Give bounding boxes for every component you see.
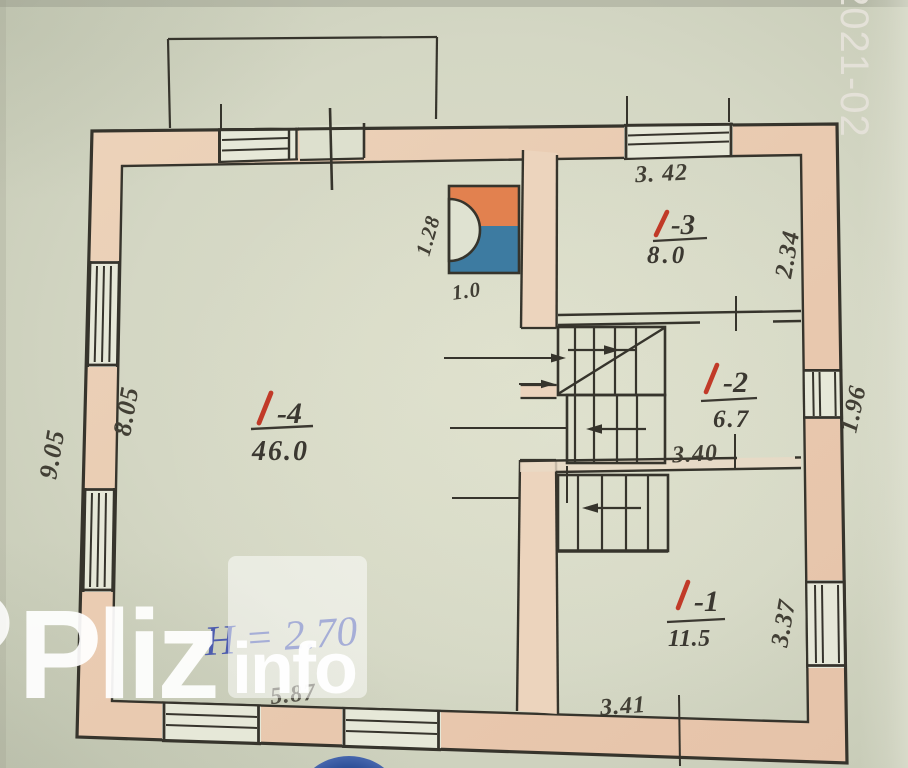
svg-text:Pliz: Pliz — [18, 584, 216, 725]
svg-text:-1: -1 — [694, 585, 719, 618]
svg-text:8.0: 8.0 — [647, 242, 687, 269]
svg-text:46.0: 46.0 — [251, 436, 309, 467]
svg-text:11.5: 11.5 — [668, 626, 711, 652]
svg-text:2021-02: 2021-02 — [832, 0, 876, 138]
svg-text:1.0: 1.0 — [450, 277, 482, 305]
svg-text:3.41: 3.41 — [598, 692, 647, 721]
svg-text:info: info — [232, 629, 356, 709]
svg-text:-3: -3 — [671, 209, 695, 241]
svg-text:3.40: 3.40 — [670, 440, 718, 468]
svg-text:3. 42: 3. 42 — [633, 160, 688, 189]
svg-text:6.7: 6.7 — [713, 406, 750, 433]
svg-text:-4: -4 — [277, 397, 302, 430]
svg-text:-2: -2 — [723, 366, 748, 399]
